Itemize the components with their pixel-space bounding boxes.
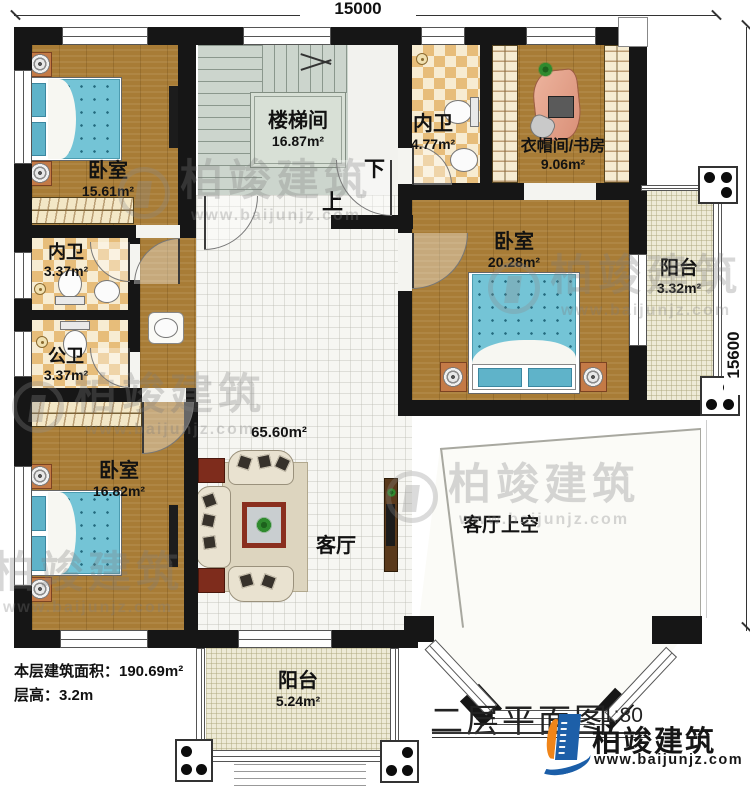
column-marker bbox=[175, 739, 213, 782]
door-opening bbox=[398, 233, 412, 291]
tv bbox=[169, 505, 178, 567]
lamp bbox=[583, 367, 603, 387]
wall bbox=[184, 402, 198, 630]
eave-outline bbox=[618, 17, 648, 47]
shower-head bbox=[416, 53, 428, 65]
dimension-right-value: 15600 bbox=[724, 315, 744, 395]
room-area: 3.37m² bbox=[44, 367, 88, 383]
room-area: 15.61m² bbox=[82, 183, 134, 199]
eave-line bbox=[706, 420, 707, 618]
company-logo-icon bbox=[540, 712, 590, 774]
window bbox=[14, 466, 32, 586]
lamp bbox=[30, 579, 50, 599]
entry-steps bbox=[234, 764, 366, 786]
lamp bbox=[30, 163, 50, 183]
wall bbox=[629, 27, 647, 191]
room-area: 4.77m² bbox=[411, 136, 455, 152]
marker-dot bbox=[721, 187, 732, 198]
bed-pillow bbox=[31, 122, 46, 156]
wardrobe bbox=[30, 197, 134, 224]
room-label-bedroom-bl: 卧室 16.82m² bbox=[93, 460, 145, 499]
floor-plan-canvas: 楼梯间 16.87m² 下 上 内卫 4.77m² 衣帽间/书房 9.06m² … bbox=[0, 0, 750, 786]
room-label-bath-tl: 内卫 3.37m² bbox=[44, 242, 88, 279]
sofa-pillow bbox=[201, 513, 216, 528]
room-label-stairwell: 楼梯间 16.87m² bbox=[268, 110, 328, 149]
marker-dot bbox=[721, 172, 732, 183]
floor-area-note: 本层建筑面积：190.69m² bbox=[14, 660, 183, 681]
window bbox=[243, 27, 331, 45]
marker-dot bbox=[706, 399, 717, 410]
balcony-railing bbox=[390, 648, 399, 754]
room-name: 楼梯间 bbox=[268, 110, 328, 133]
room-area: 9.06m² bbox=[521, 156, 605, 172]
room-label-bath-public: 公卫 3.37m² bbox=[44, 346, 88, 383]
logo-building bbox=[555, 714, 581, 760]
shower-head bbox=[34, 283, 46, 295]
room-label-bedroom-r: 卧室 20.28m² bbox=[488, 231, 540, 270]
room-name: 阳台 bbox=[276, 670, 320, 693]
room-area: 20.28m² bbox=[488, 254, 540, 270]
company-url: www.baijunjz.com bbox=[594, 752, 743, 768]
marker-dot bbox=[386, 765, 397, 776]
door-opening bbox=[524, 183, 596, 200]
door-opening bbox=[142, 388, 186, 402]
room-area: 65.60m² bbox=[251, 424, 307, 441]
room-name: 内卫 bbox=[44, 242, 88, 263]
floor-height-note: 层高：3.2m bbox=[14, 684, 93, 705]
room-area: 16.87m² bbox=[268, 133, 328, 149]
plant bbox=[538, 62, 553, 77]
sliding-door bbox=[629, 254, 647, 346]
sliding-door bbox=[238, 630, 332, 648]
wall bbox=[398, 400, 701, 416]
room-label-balcony-bottom: 阳台 5.24m² bbox=[276, 670, 320, 709]
lamp bbox=[30, 466, 50, 486]
stair-down-label: 下 bbox=[364, 153, 385, 183]
computer-monitor bbox=[548, 96, 574, 118]
tv bbox=[169, 86, 178, 148]
room-name: 客厅上空 bbox=[463, 515, 539, 537]
plant bbox=[387, 488, 396, 497]
room-name: 卧室 bbox=[82, 160, 134, 183]
marker-dot bbox=[704, 172, 715, 183]
bed-pillow bbox=[528, 368, 572, 387]
toilet-tank bbox=[470, 97, 479, 127]
wall bbox=[652, 616, 702, 644]
sofa-pillow bbox=[202, 535, 217, 550]
sink bbox=[94, 280, 120, 303]
window bbox=[421, 27, 465, 45]
room-label-living-void: 客厅上空 bbox=[463, 515, 539, 537]
column-marker bbox=[380, 740, 419, 783]
sofa-pillow bbox=[257, 454, 272, 469]
window bbox=[62, 27, 148, 45]
wardrobe bbox=[604, 45, 630, 183]
floor-living-void bbox=[408, 416, 702, 732]
room-name: 内卫 bbox=[411, 113, 455, 136]
lamp bbox=[443, 367, 463, 387]
room-label-cloak-study: 衣帽间/书房 9.06m² bbox=[521, 138, 605, 172]
toilet-tank bbox=[60, 321, 90, 330]
room-label-living: 客厅 bbox=[316, 535, 356, 558]
wall bbox=[14, 310, 128, 320]
room-area: 5.24m² bbox=[276, 693, 320, 709]
sink bbox=[154, 318, 178, 338]
wardrobe bbox=[30, 400, 142, 427]
column-marker bbox=[698, 166, 738, 204]
balcony-railing bbox=[196, 750, 399, 762]
living-area-label: 65.60m² bbox=[251, 424, 307, 441]
dimension-line-right bbox=[746, 27, 747, 631]
room-name: 公卫 bbox=[44, 346, 88, 367]
marker-dot bbox=[181, 746, 192, 757]
room-area: 3.32m² bbox=[657, 280, 701, 296]
bed-pillow bbox=[31, 536, 46, 571]
marker-dot bbox=[181, 764, 192, 775]
toilet-tank bbox=[55, 296, 85, 305]
marker-dot bbox=[402, 765, 413, 776]
bed-pillow bbox=[31, 83, 46, 117]
void-edge bbox=[700, 428, 701, 618]
door-opening bbox=[136, 225, 180, 238]
room-name: 阳台 bbox=[657, 258, 701, 280]
bed-pillow bbox=[478, 368, 522, 387]
marker-dot bbox=[723, 399, 734, 410]
wall bbox=[480, 45, 492, 183]
marker-dot bbox=[402, 747, 413, 758]
room-label-bedroom-tl: 卧室 15.61m² bbox=[82, 160, 134, 199]
room-name: 衣帽间/书房 bbox=[521, 138, 605, 156]
lamp bbox=[30, 54, 50, 74]
room-area: 3.37m² bbox=[44, 263, 88, 279]
room-label-balcony-right: 阳台 3.32m² bbox=[657, 258, 701, 296]
wardrobe bbox=[492, 45, 518, 183]
bed-pillow bbox=[31, 496, 46, 531]
room-area: 16.82m² bbox=[93, 483, 145, 499]
window bbox=[60, 630, 148, 648]
wall bbox=[398, 183, 647, 200]
side-table bbox=[198, 458, 225, 483]
window bbox=[14, 331, 32, 377]
window bbox=[14, 70, 32, 164]
wall bbox=[331, 215, 413, 229]
balcony-railing bbox=[713, 188, 722, 402]
wall bbox=[404, 616, 434, 642]
side-table bbox=[198, 568, 225, 593]
stair-up-label: 上 bbox=[322, 186, 343, 216]
room-name: 卧室 bbox=[488, 231, 540, 254]
plant bbox=[256, 517, 272, 533]
tv bbox=[386, 504, 395, 546]
window bbox=[526, 27, 596, 45]
dimension-top-value: 15000 bbox=[300, 0, 416, 19]
window bbox=[14, 252, 32, 299]
room-label-bath-top: 内卫 4.77m² bbox=[411, 113, 455, 152]
room-name: 卧室 bbox=[93, 460, 145, 483]
door-opening bbox=[398, 148, 412, 184]
wall bbox=[178, 45, 196, 225]
room-name: 客厅 bbox=[316, 535, 356, 558]
marker-dot bbox=[196, 764, 207, 775]
